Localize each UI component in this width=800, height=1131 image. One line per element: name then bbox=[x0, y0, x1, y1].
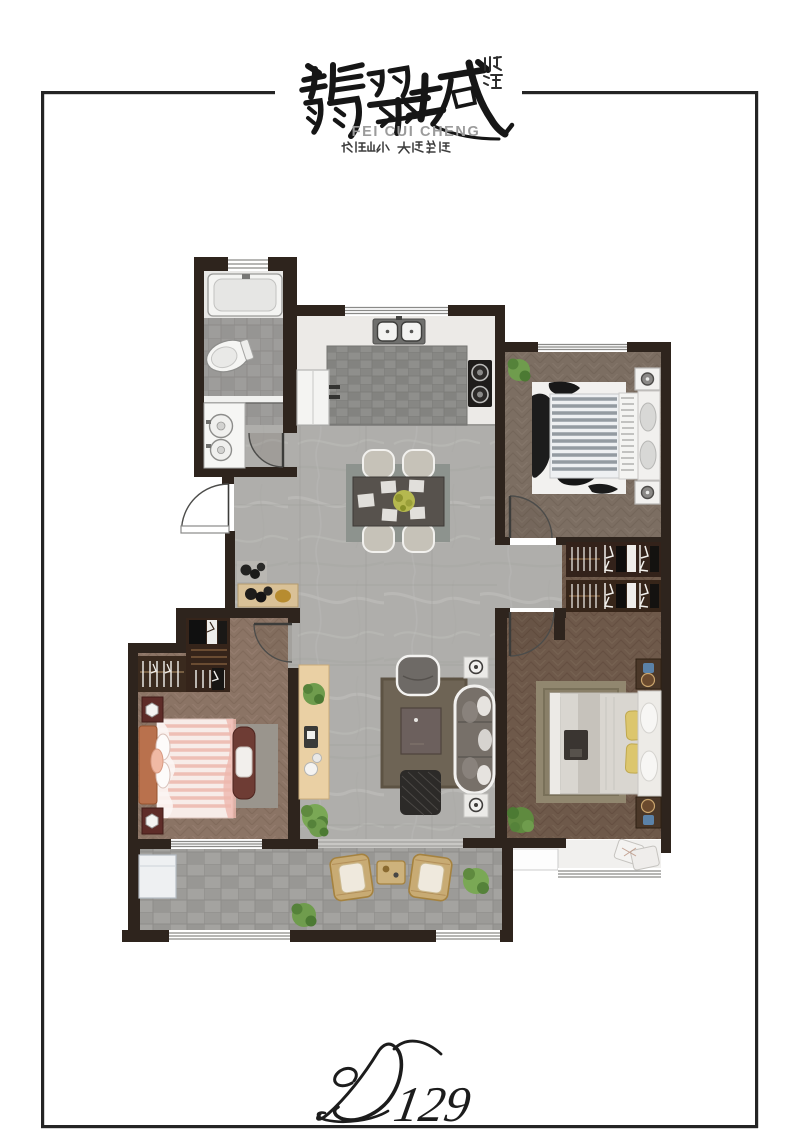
svg-text:129: 129 bbox=[390, 1076, 475, 1131]
svg-text:FEI CUI CHENG: FEI CUI CHENG bbox=[352, 124, 481, 140]
